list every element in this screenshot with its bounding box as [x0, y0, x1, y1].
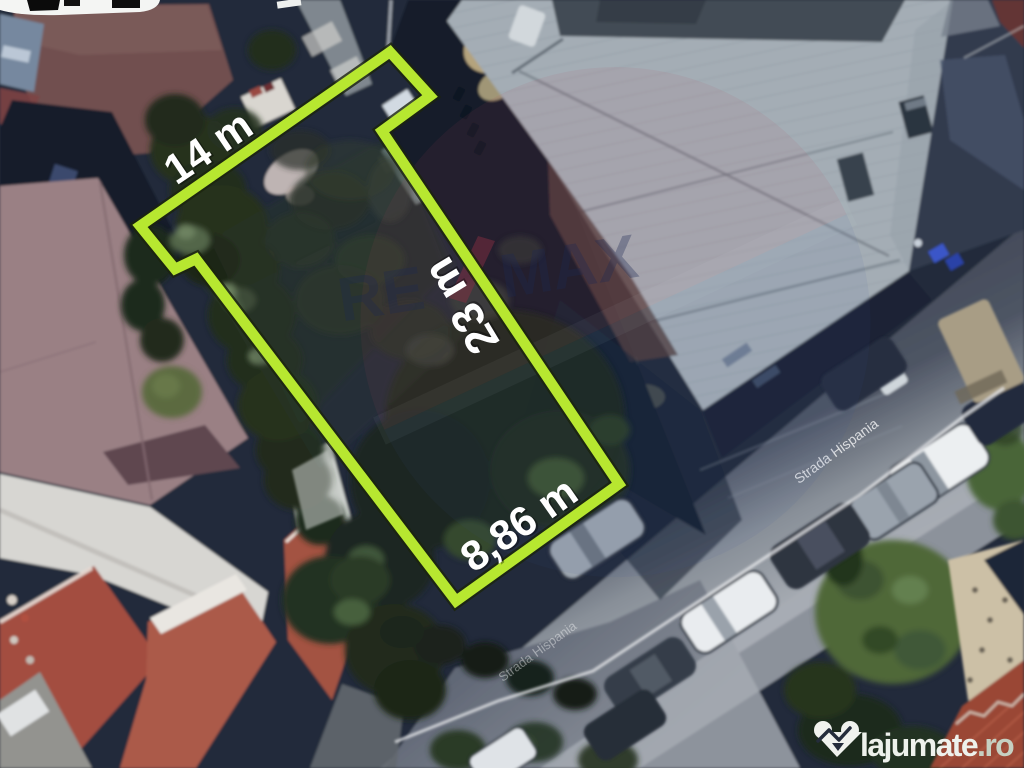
svg-text:RE: RE — [333, 254, 429, 336]
svg-text:lajumate.ro: lajumate.ro — [860, 727, 1014, 763]
